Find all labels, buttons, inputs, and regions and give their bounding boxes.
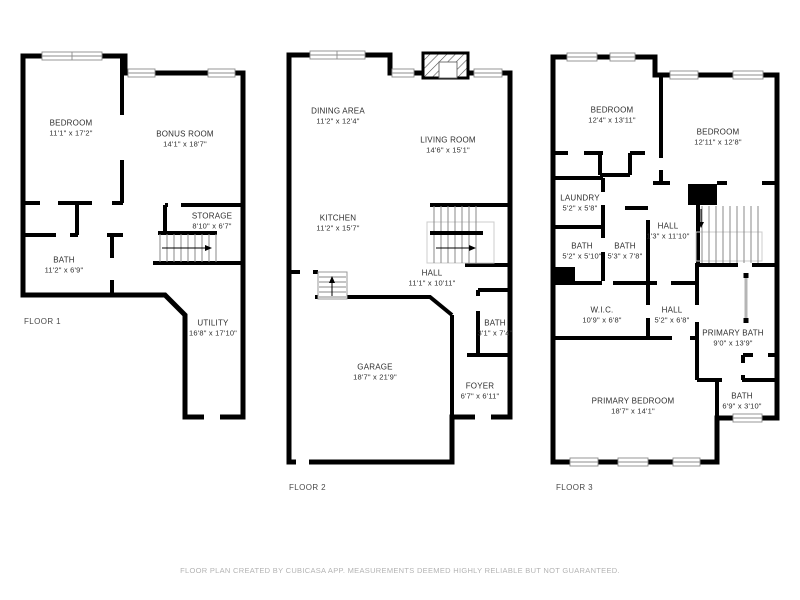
room-dims: 18'7" x 14'1" bbox=[592, 406, 675, 416]
room-dims: 14'6" x 15'1" bbox=[420, 145, 476, 155]
floor1-label: FLOOR 1 bbox=[24, 317, 61, 326]
room-dims: 11'2" x 6'9" bbox=[45, 265, 84, 275]
room-dims: 5'2" x 6'8" bbox=[655, 315, 690, 325]
room-dims: 5'2" x 5'8" bbox=[560, 203, 600, 213]
room-name: BATH bbox=[608, 242, 643, 252]
room-name: BATH bbox=[478, 319, 513, 329]
room-name: BEDROOM bbox=[694, 128, 742, 138]
room-name: HALL bbox=[409, 269, 456, 279]
room-label-hall-f2: HALL 11'1" x 10'11" bbox=[409, 269, 456, 288]
room-name: BATH bbox=[562, 242, 601, 252]
disclaimer-text: FLOOR PLAN CREATED BY CUBICASA APP. MEAS… bbox=[180, 566, 620, 575]
floor-plan-drawing bbox=[0, 0, 800, 600]
room-label-bath3-f3: BATH 6'9" x 3'10" bbox=[722, 392, 761, 411]
room-name: W.I.C. bbox=[582, 306, 621, 316]
shower-glass-icon bbox=[744, 273, 749, 323]
room-dims: 11'2" x 15'7" bbox=[316, 223, 359, 233]
room-label-hall-lower-f3: HALL 5'2" x 6'8" bbox=[655, 306, 690, 325]
room-label-laundry: LAUNDRY 5'2" x 5'8" bbox=[560, 194, 600, 213]
room-dims: 11'1" x 10'11" bbox=[409, 278, 456, 288]
room-name: BONUS ROOM bbox=[156, 130, 214, 140]
room-dims: 12'4" x 13'11" bbox=[588, 115, 636, 125]
room-dims: 8'10" x 6'7" bbox=[192, 221, 232, 231]
room-label-wic: W.I.C. 10'9" x 6'8" bbox=[582, 306, 621, 325]
floor2-garage-steps-icon bbox=[318, 272, 347, 299]
room-label-bath2-f3: BATH 5'3" x 7'8" bbox=[608, 242, 643, 261]
floor3-stairs-icon bbox=[696, 206, 762, 263]
room-label-dining-area: DINING AREA 11'2" x 12'4" bbox=[311, 107, 365, 126]
room-name: BATH bbox=[45, 256, 84, 266]
room-label-primary-bedroom: PRIMARY BEDROOM 18'7" x 14'1" bbox=[592, 397, 675, 416]
room-name: UTILITY bbox=[189, 319, 237, 329]
room-name: FOYER bbox=[461, 382, 500, 392]
room-name: DINING AREA bbox=[311, 107, 365, 117]
room-dims: 1'3" x 11'10" bbox=[646, 231, 689, 241]
room-dims: 6'7" x 6'11" bbox=[461, 391, 500, 401]
room-dims: 12'11" x 12'8" bbox=[694, 137, 742, 147]
room-label-primary-bath: PRIMARY BATH 9'0" x 13'9" bbox=[702, 329, 764, 348]
room-label-hall-upper-f3: HALL 1'3" x 11'10" bbox=[646, 222, 689, 241]
floor-plan-canvas: BEDROOM 11'1" x 17'2" BONUS ROOM 14'1" x… bbox=[0, 0, 800, 600]
room-name: STORAGE bbox=[192, 212, 232, 222]
room-label-kitchen: KITCHEN 11'2" x 15'7" bbox=[316, 214, 359, 233]
room-label-bedroom1-f3: BEDROOM 12'4" x 13'11" bbox=[588, 106, 636, 125]
room-dims: 16'8" x 17'10" bbox=[189, 328, 237, 338]
room-name: BEDROOM bbox=[588, 106, 636, 116]
room-label-bedroom-f1: BEDROOM 11'1" x 17'2" bbox=[49, 119, 92, 138]
room-label-foyer: FOYER 6'7" x 6'11" bbox=[461, 382, 500, 401]
floor1-stairs-icon bbox=[160, 234, 216, 262]
room-label-storage: STORAGE 8'10" x 6'7" bbox=[192, 212, 232, 231]
room-name: PRIMARY BEDROOM bbox=[592, 397, 675, 407]
room-name: KITCHEN bbox=[316, 214, 359, 224]
floor2-label: FLOOR 2 bbox=[289, 483, 326, 492]
room-dims: 5'3" x 7'8" bbox=[608, 251, 643, 261]
room-dims: 10'9" x 6'8" bbox=[582, 315, 621, 325]
room-dims: 9'0" x 13'9" bbox=[702, 338, 764, 348]
room-label-utility: UTILITY 16'8" x 17'10" bbox=[189, 319, 237, 338]
room-label-bath-f1: BATH 11'2" x 6'9" bbox=[45, 256, 84, 275]
room-name: HALL bbox=[655, 306, 690, 316]
room-label-bath1-f3: BATH 5'2" x 5'10" bbox=[562, 242, 601, 261]
room-name: BATH bbox=[722, 392, 761, 402]
room-dims: 11'2" x 12'4" bbox=[311, 116, 365, 126]
room-dims: 6'9" x 3'10" bbox=[722, 401, 761, 411]
room-name: PRIMARY BATH bbox=[702, 329, 764, 339]
room-dims: 14'1" x 18'7" bbox=[156, 139, 214, 149]
room-label-bonus-room: BONUS ROOM 14'1" x 18'7" bbox=[156, 130, 214, 149]
room-name: LAUNDRY bbox=[560, 194, 600, 204]
room-name: LIVING ROOM bbox=[420, 136, 476, 146]
floor1-plan bbox=[23, 52, 243, 422]
floor3-door-gaps bbox=[570, 149, 584, 157]
room-dims: 3'1" x 7'4" bbox=[478, 328, 513, 338]
room-name: GARAGE bbox=[353, 363, 397, 373]
room-label-bath-f2: BATH 3'1" x 7'4" bbox=[478, 319, 513, 338]
room-name: HALL bbox=[646, 222, 689, 232]
room-label-bedroom2-f3: BEDROOM 12'11" x 12'8" bbox=[694, 128, 742, 147]
floor3-label: FLOOR 3 bbox=[556, 483, 593, 492]
room-dims: 11'1" x 17'2" bbox=[49, 128, 92, 138]
room-label-garage: GARAGE 18'7" x 21'9" bbox=[353, 363, 397, 382]
room-dims: 5'2" x 5'10" bbox=[562, 251, 601, 261]
room-name: BEDROOM bbox=[49, 119, 92, 129]
room-label-living-room: LIVING ROOM 14'6" x 15'1" bbox=[420, 136, 476, 155]
room-dims: 18'7" x 21'9" bbox=[353, 372, 397, 382]
fireplace-icon bbox=[423, 53, 468, 78]
